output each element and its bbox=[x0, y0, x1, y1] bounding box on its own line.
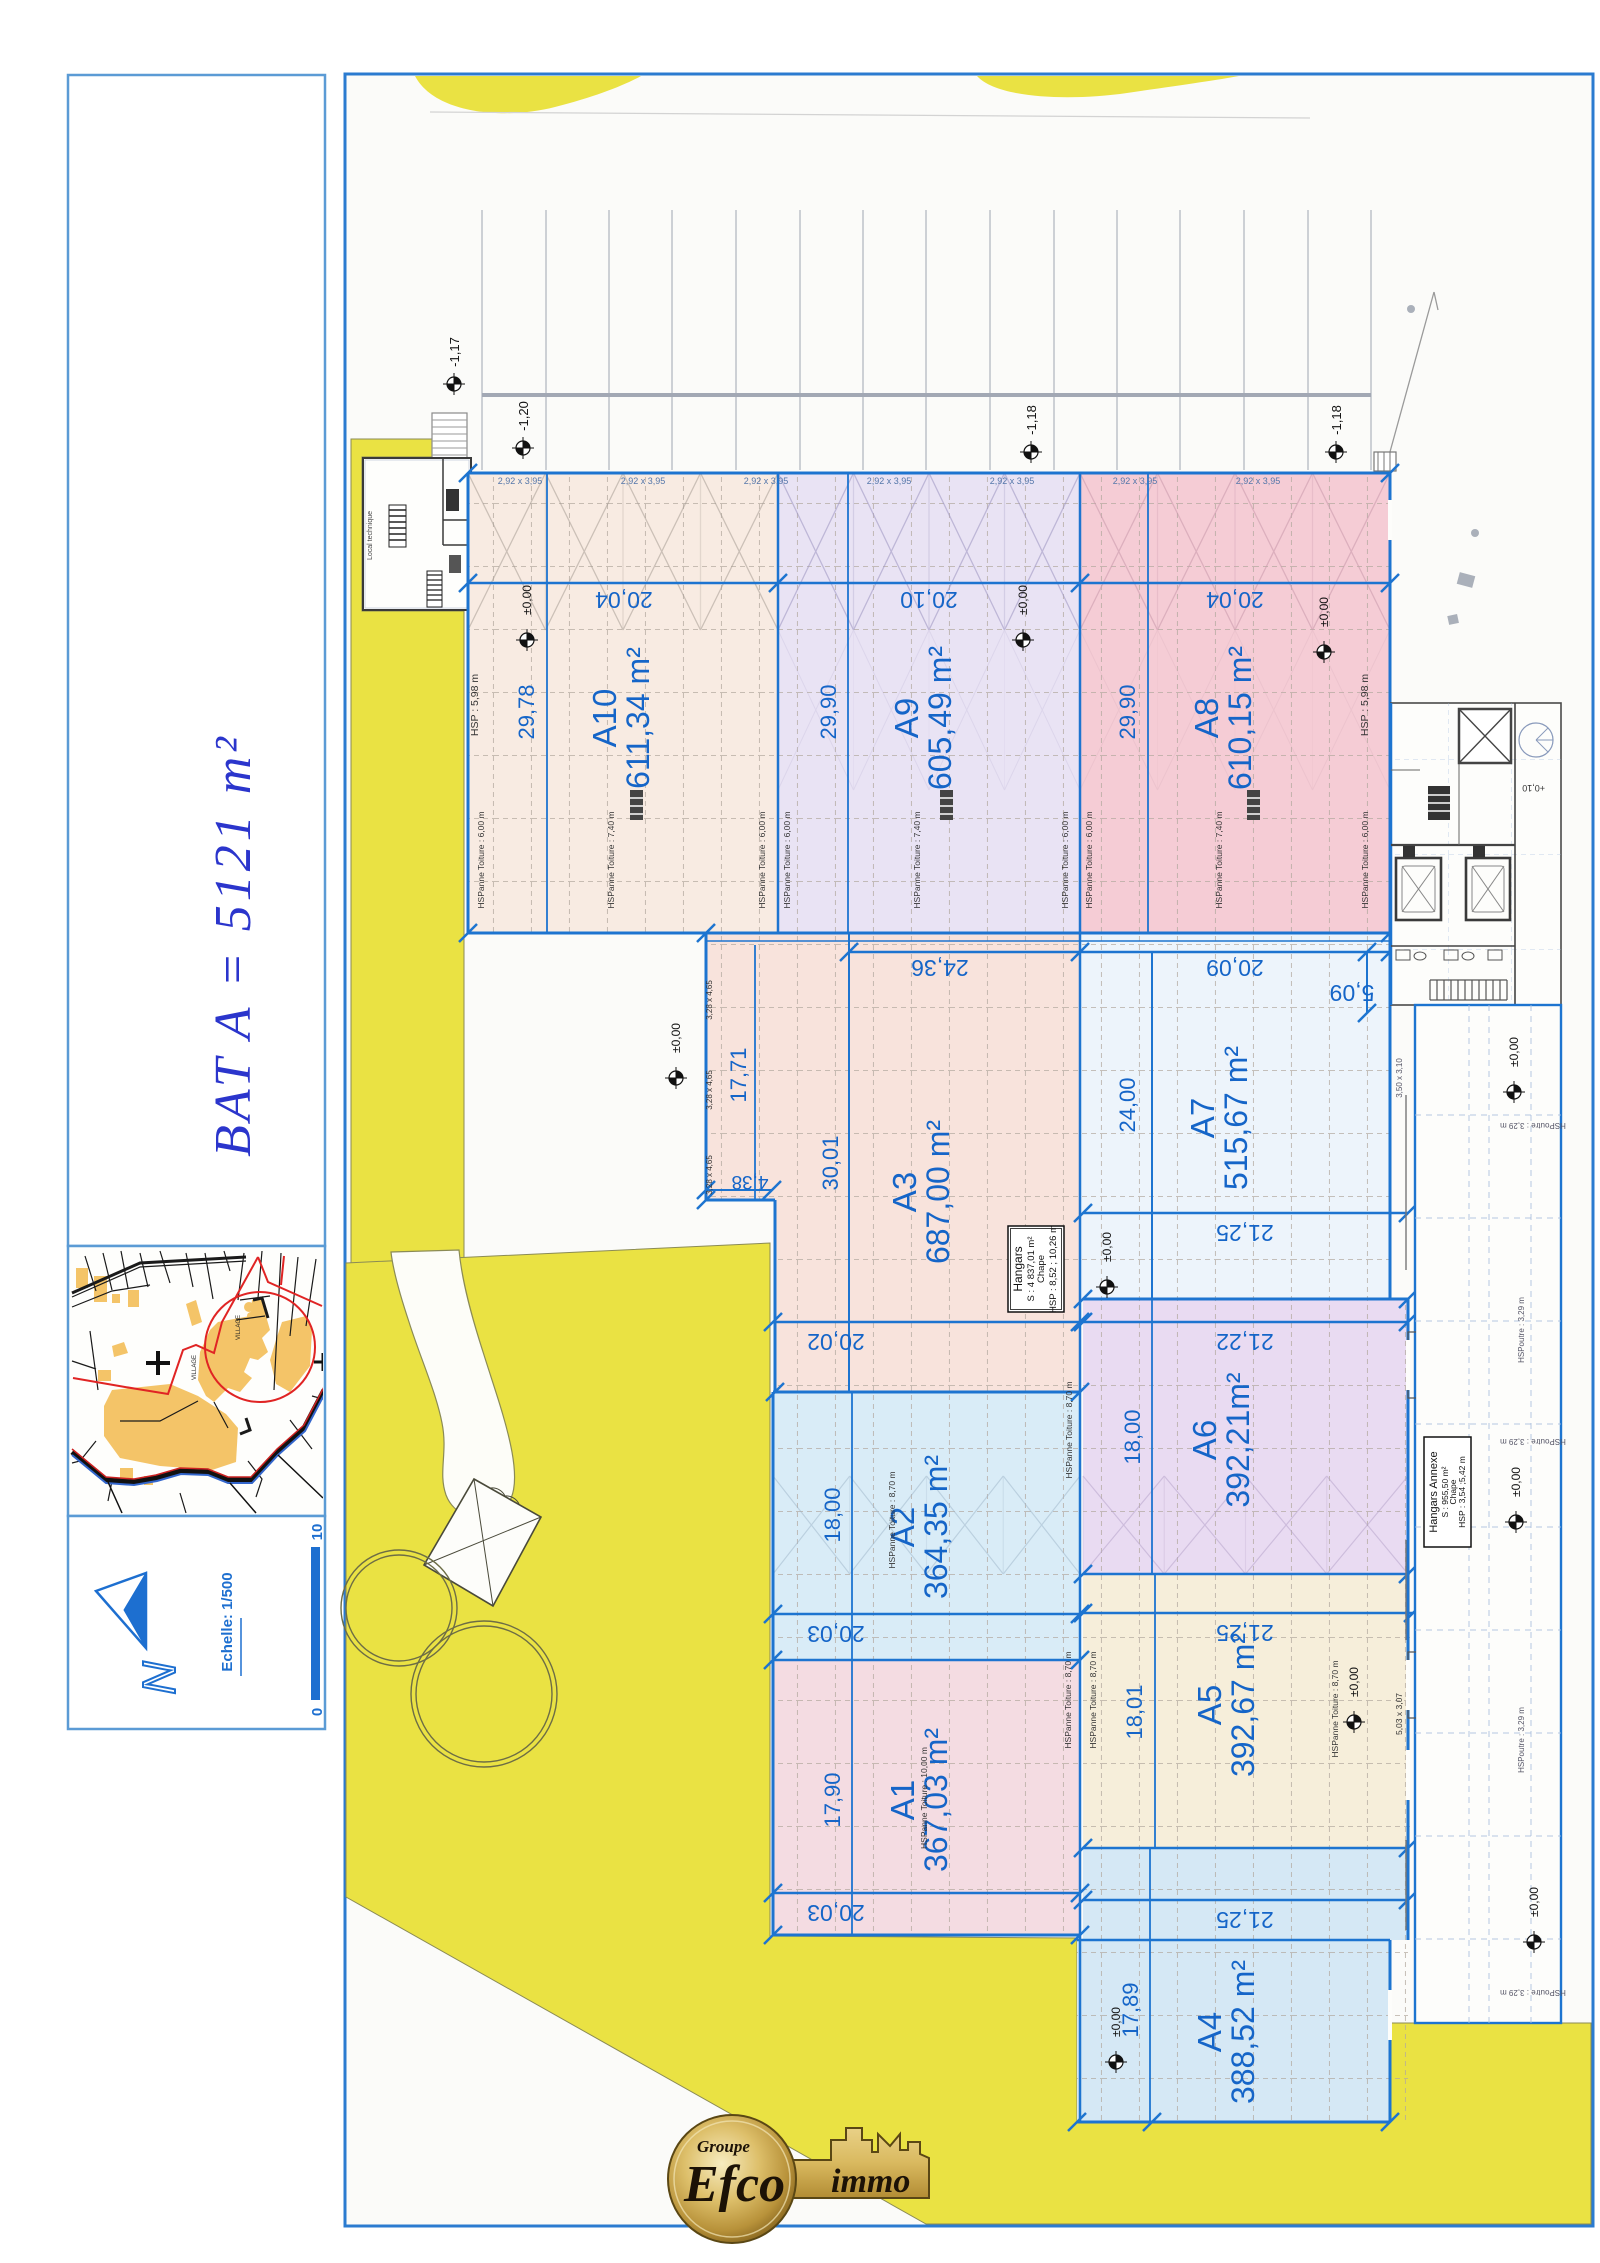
svg-text:3,50 x 3,10: 3,50 x 3,10 bbox=[1395, 1058, 1404, 1098]
svg-text:Hangars Annexe: Hangars Annexe bbox=[1428, 1451, 1440, 1532]
svg-text:20,04: 20,04 bbox=[1206, 587, 1264, 613]
svg-text:29,90: 29,90 bbox=[816, 684, 841, 739]
svg-text:-1,20: -1,20 bbox=[516, 401, 531, 431]
svg-text:±0,00: ±0,00 bbox=[1109, 2007, 1123, 2037]
svg-text:21,22: 21,22 bbox=[1216, 1329, 1274, 1355]
svg-text:Echelle: 1/500: Echelle: 1/500 bbox=[219, 1572, 236, 1671]
svg-text:HSPanne Toiture : 6,00 m: HSPanne Toiture : 6,00 m bbox=[757, 811, 767, 908]
svg-text:388,52 m²: 388,52 m² bbox=[1225, 1960, 1261, 2104]
svg-text:HSPanne Toiture : 6,00 m: HSPanne Toiture : 6,00 m bbox=[1360, 811, 1370, 908]
svg-text:0: 0 bbox=[309, 1708, 326, 1716]
svg-text:HSPanne Toiture : 7,40 m: HSPanne Toiture : 7,40 m bbox=[912, 811, 922, 908]
svg-text:Efco: Efco bbox=[683, 2156, 785, 2213]
svg-text:29,78: 29,78 bbox=[514, 684, 539, 739]
svg-text:±0,00: ±0,00 bbox=[1527, 1887, 1541, 1917]
svg-text:±0,00: ±0,00 bbox=[1509, 1467, 1523, 1497]
svg-text:A10: A10 bbox=[586, 689, 623, 748]
svg-text:20,03: 20,03 bbox=[807, 1621, 865, 1647]
svg-text:±0,00: ±0,00 bbox=[669, 1023, 683, 1053]
svg-text:HSPoutre : 3,29 m: HSPoutre : 3,29 m bbox=[1500, 1121, 1566, 1130]
svg-text:20,04: 20,04 bbox=[595, 587, 653, 613]
svg-text:HSPanne Toiture : 6,00 m: HSPanne Toiture : 6,00 m bbox=[1060, 811, 1070, 908]
svg-text:HSPoutre : 3,29 m: HSPoutre : 3,29 m bbox=[1500, 1988, 1566, 1997]
svg-text:N: N bbox=[133, 1661, 185, 1695]
svg-text:A3: A3 bbox=[886, 1172, 923, 1212]
svg-text:18,00: 18,00 bbox=[1120, 1409, 1145, 1464]
svg-text:605,49 m²: 605,49 m² bbox=[922, 646, 958, 790]
svg-text:Groupe: Groupe bbox=[697, 2137, 750, 2156]
svg-text:20,02: 20,02 bbox=[807, 1329, 865, 1355]
svg-text:±0,00: ±0,00 bbox=[1347, 1667, 1361, 1697]
svg-text:HSP : 5,98 m: HSP : 5,98 m bbox=[1359, 674, 1371, 737]
svg-text:17,71: 17,71 bbox=[726, 1047, 751, 1102]
svg-text:+0,10: +0,10 bbox=[1522, 783, 1545, 793]
svg-text:3,28 x 4,65: 3,28 x 4,65 bbox=[705, 1155, 714, 1195]
svg-text:4,38: 4,38 bbox=[732, 1171, 769, 1192]
svg-text:2,92 x 3,95: 2,92 x 3,95 bbox=[744, 476, 789, 486]
svg-text:392,67 m²: 392,67 m² bbox=[1225, 1633, 1261, 1777]
svg-text:A9: A9 bbox=[888, 698, 925, 738]
svg-text:A4: A4 bbox=[1191, 2012, 1228, 2052]
svg-text:HSPoutre : 3,29 m: HSPoutre : 3,29 m bbox=[1517, 1297, 1526, 1363]
svg-text:2,92 x 3,95: 2,92 x 3,95 bbox=[621, 476, 666, 486]
svg-text:HSPoutre : 3,29 m: HSPoutre : 3,29 m bbox=[1500, 1437, 1566, 1446]
svg-text:2,92 x 3,95: 2,92 x 3,95 bbox=[990, 476, 1035, 486]
svg-text:HSPanne Toiture : 6,00 m: HSPanne Toiture : 6,00 m bbox=[1084, 811, 1094, 908]
svg-text:2,92 x 3,95: 2,92 x 3,95 bbox=[867, 476, 912, 486]
svg-text:HSPanne Toiture : 8,70 m: HSPanne Toiture : 8,70 m bbox=[1088, 1651, 1098, 1748]
svg-text:3,28 x 4,65: 3,28 x 4,65 bbox=[705, 1070, 714, 1110]
svg-text:2,92 x 3,95: 2,92 x 3,95 bbox=[1113, 476, 1158, 486]
svg-text:HSPanne Toiture : 10,00 m: HSPanne Toiture : 10,00 m bbox=[919, 1747, 929, 1849]
svg-text:HSP : 3,54 ;5,42 m: HSP : 3,54 ;5,42 m bbox=[1457, 1456, 1467, 1528]
svg-text:3,28 x 4,65: 3,28 x 4,65 bbox=[705, 980, 714, 1020]
svg-text:-1,18: -1,18 bbox=[1024, 405, 1039, 435]
svg-text:610,15 m²: 610,15 m² bbox=[1222, 646, 1258, 790]
svg-text:18,00: 18,00 bbox=[820, 1487, 845, 1542]
svg-text:±0,00: ±0,00 bbox=[1317, 597, 1331, 627]
svg-text:515,67 m²: 515,67 m² bbox=[1218, 1046, 1254, 1190]
svg-text:-1,17: -1,17 bbox=[447, 337, 462, 367]
svg-text:A7: A7 bbox=[1184, 1098, 1221, 1138]
svg-text:364,35 m²: 364,35 m² bbox=[918, 1455, 954, 1599]
svg-text:HSPanne Toiture : 7,40 m: HSPanne Toiture : 7,40 m bbox=[606, 811, 616, 908]
svg-text:687,00 m²: 687,00 m² bbox=[920, 1120, 956, 1264]
svg-text:HSPanne Toiture : 7,40 m: HSPanne Toiture : 7,40 m bbox=[1214, 811, 1224, 908]
svg-text:10: 10 bbox=[309, 1524, 326, 1541]
svg-text:VILLAGE: VILLAGE bbox=[236, 1315, 242, 1340]
svg-text:Chape: Chape bbox=[1036, 1255, 1047, 1283]
svg-text:immo: immo bbox=[831, 2163, 910, 2200]
svg-text:HSPanne Toiture : 8,70 m: HSPanne Toiture : 8,70 m bbox=[1063, 1651, 1073, 1748]
svg-text:21,25: 21,25 bbox=[1216, 1907, 1274, 1933]
svg-text:±0,00: ±0,00 bbox=[1100, 1232, 1114, 1262]
svg-text:±0,00: ±0,00 bbox=[1016, 585, 1030, 615]
svg-text:2,92 x 3,95: 2,92 x 3,95 bbox=[1236, 476, 1281, 486]
svg-text:A6: A6 bbox=[1186, 1420, 1223, 1460]
svg-text:HSPoutre : 3,29 m: HSPoutre : 3,29 m bbox=[1517, 1707, 1526, 1773]
svg-text:24,36: 24,36 bbox=[911, 955, 969, 981]
svg-text:29,90: 29,90 bbox=[1115, 684, 1140, 739]
svg-text:18,01: 18,01 bbox=[1122, 1684, 1147, 1739]
svg-text:VILLAGE: VILLAGE bbox=[192, 1355, 198, 1380]
svg-text:-1,18: -1,18 bbox=[1329, 405, 1344, 435]
svg-text:±0,00: ±0,00 bbox=[1507, 1037, 1521, 1067]
svg-text:HSPanne Toiture : 8,70 m: HSPanne Toiture : 8,70 m bbox=[1064, 1381, 1074, 1478]
svg-text:20,10: 20,10 bbox=[900, 587, 958, 613]
svg-text:17,90: 17,90 bbox=[820, 1772, 845, 1827]
svg-text:BAT A = 5121 m²: BAT A = 5121 m² bbox=[205, 733, 262, 1157]
svg-text:24,00: 24,00 bbox=[1115, 1077, 1140, 1132]
svg-text:HSP : 8,52 ; 10,26 m: HSP : 8,52 ; 10,26 m bbox=[1048, 1225, 1059, 1313]
svg-text:5,09: 5,09 bbox=[1330, 980, 1375, 1006]
svg-text:A5: A5 bbox=[1191, 1685, 1228, 1725]
svg-text:HSPanne Toiture : 8,70 m: HSPanne Toiture : 8,70 m bbox=[1330, 1660, 1340, 1757]
svg-text:2,92 x 3,95: 2,92 x 3,95 bbox=[498, 476, 543, 486]
svg-text:HSPanne Toiture : 8,70 m: HSPanne Toiture : 8,70 m bbox=[887, 1471, 897, 1568]
svg-text:20,03: 20,03 bbox=[807, 1900, 865, 1926]
svg-text:Hangars: Hangars bbox=[1011, 1246, 1025, 1291]
svg-text:±0,00: ±0,00 bbox=[520, 585, 534, 615]
svg-text:20,09: 20,09 bbox=[1206, 955, 1264, 981]
svg-text:30,01: 30,01 bbox=[818, 1135, 843, 1190]
svg-text:HSPanne Toiture : 6,00 m: HSPanne Toiture : 6,00 m bbox=[782, 811, 792, 908]
svg-text:A1: A1 bbox=[884, 1780, 921, 1820]
svg-text:21,25: 21,25 bbox=[1216, 1220, 1274, 1246]
svg-text:A8: A8 bbox=[1188, 698, 1225, 738]
svg-text:HSP : 5,98 m: HSP : 5,98 m bbox=[469, 674, 481, 737]
svg-text:392,21m²: 392,21m² bbox=[1220, 1372, 1256, 1508]
svg-text:5,03 x 3,07: 5,03 x 3,07 bbox=[1394, 1693, 1404, 1735]
svg-text:HSPanne Toiture : 6,00 m: HSPanne Toiture : 6,00 m bbox=[476, 811, 486, 908]
svg-text:Local technique: Local technique bbox=[367, 511, 374, 560]
svg-text:611,34 m²: 611,34 m² bbox=[620, 647, 656, 789]
